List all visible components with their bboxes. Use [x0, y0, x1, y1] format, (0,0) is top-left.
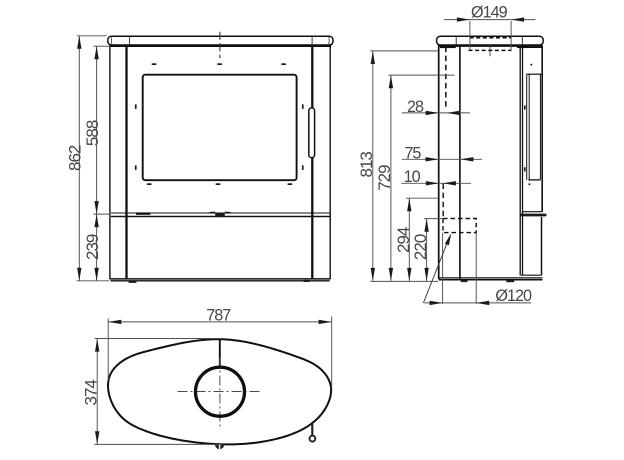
svg-text:374: 374 [81, 380, 100, 406]
svg-text:239: 239 [83, 234, 102, 260]
svg-text:588: 588 [83, 120, 102, 146]
svg-text:813: 813 [357, 152, 376, 178]
svg-text:294: 294 [394, 227, 413, 253]
svg-text:787: 787 [206, 306, 231, 324]
svg-text:862: 862 [66, 145, 85, 171]
svg-text:Ø149: Ø149 [471, 4, 508, 22]
svg-text:729: 729 [375, 165, 394, 191]
svg-text:Ø120: Ø120 [495, 287, 532, 305]
svg-text:220: 220 [411, 234, 430, 260]
